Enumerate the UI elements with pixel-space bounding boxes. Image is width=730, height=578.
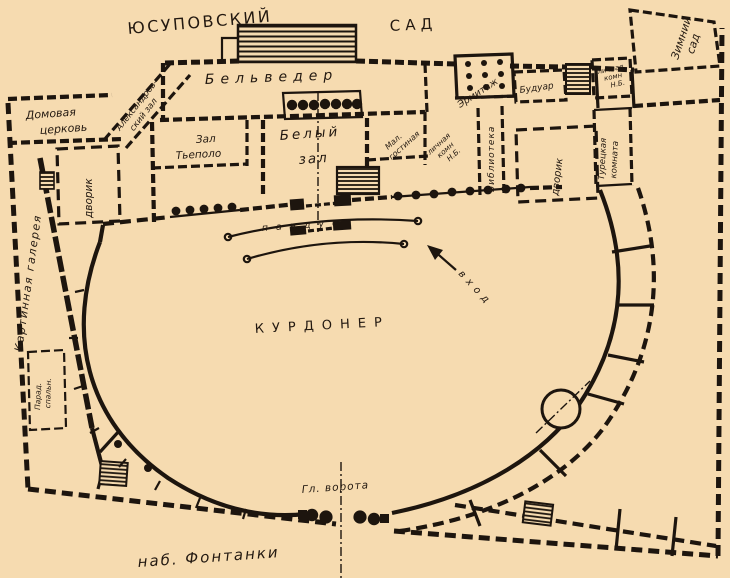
label-state-bedroom-2: спальн. [43, 378, 53, 408]
label-library: Библиотека [487, 126, 497, 192]
small-staircase [40, 172, 54, 189]
garden-terrace-stairs [238, 25, 356, 62]
label-yusupov-garden-right: САД [389, 15, 437, 35]
ne-staircase [566, 64, 590, 94]
label-turkish-room-2: комната [609, 141, 621, 179]
scanned-floor-plan-page: ЮСУПОВСКИЙ САД Зимний сад Бельведер Домо… [0, 0, 730, 578]
label-state-bedroom-1: Парад. [33, 383, 43, 410]
label-white-hall-2: зал [298, 150, 329, 168]
label-tiepolo-2: Тьеполо [176, 148, 222, 162]
floor-plan-svg: ЮСУПОВСКИЙ САД Зимний сад Бельведер Домо… [0, 0, 730, 578]
grand-staircase [337, 167, 379, 194]
right-wing-staircase [523, 501, 553, 525]
gallery-staircase [99, 461, 128, 486]
label-tiepolo-1: Зал [196, 133, 217, 146]
label-courtyard-left: дворик [83, 178, 95, 219]
